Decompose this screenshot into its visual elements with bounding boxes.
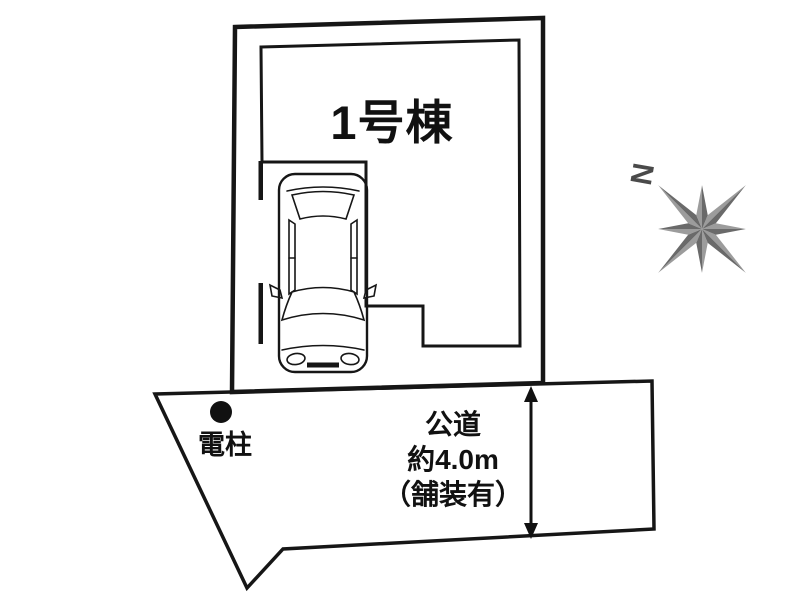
parking-line-mark [259,161,264,200]
road-width-arrow [524,386,538,539]
car-icon [270,174,376,372]
road-annotation: 公道 約4.0m （舗装有） [381,407,525,512]
building-number-label: 1号棟 [262,84,522,153]
parking-line-mark [259,283,264,344]
road-type-text: 公道 [381,407,525,442]
road-surface-text: （舗装有） [381,477,525,512]
utility-pole-label: 電柱 [184,423,266,462]
site-plan-diagram: N 1号棟 電柱 公道 約4.0m （舗装有） [0,0,800,598]
utility-pole-dot [210,401,232,423]
compass-north-label: N [625,161,661,188]
road-width-text: 約4.0m [381,442,525,477]
